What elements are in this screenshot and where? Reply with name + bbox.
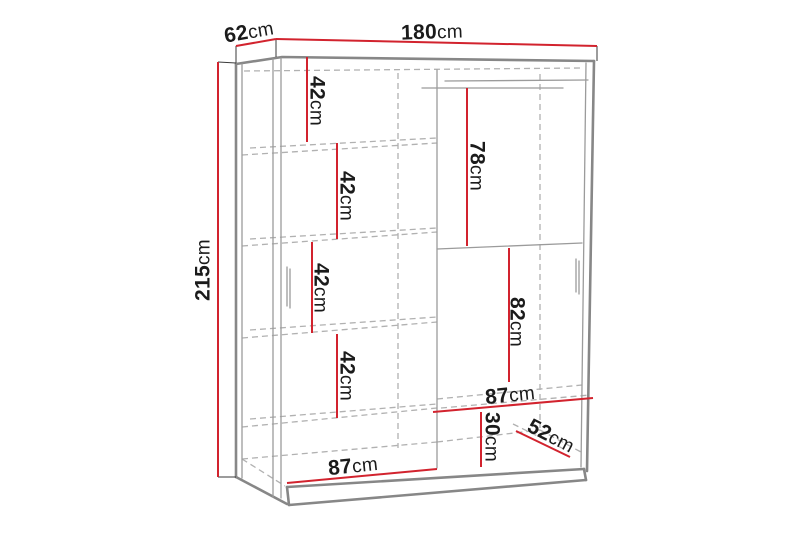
- dim-label-shelf-42-2: 42cm: [337, 171, 358, 221]
- shelf-line: [250, 317, 437, 330]
- dim-unit: cm: [466, 165, 487, 191]
- shelf-line: [250, 138, 437, 148]
- dim-label-hanging-78: 78cm: [467, 141, 488, 191]
- dim-unit: cm: [437, 21, 464, 43]
- right-side-inner-edge: [581, 63, 586, 467]
- dim-label-hanging-82: 82cm: [507, 297, 528, 347]
- dim-unit: cm: [351, 454, 379, 478]
- dim-unit: cm: [506, 321, 527, 347]
- right-door-handle: [576, 259, 579, 294]
- dim-unit: cm: [246, 18, 275, 43]
- dim-value: 215: [192, 265, 215, 301]
- dim-value: 78: [466, 141, 489, 165]
- dim-unit: cm: [306, 100, 327, 126]
- plinth-left-edge: [287, 487, 289, 505]
- wardrobe-line-drawing: [0, 0, 800, 533]
- left-side-bottom-edge: [236, 477, 287, 504]
- dim-value: 42: [306, 76, 329, 100]
- dim-value: 42: [336, 171, 359, 195]
- dim-label-height-30: 30cm: [482, 412, 503, 462]
- plinth-right-edge: [584, 469, 586, 480]
- dim-label-shelf-42-3: 42cm: [311, 263, 332, 313]
- dim-unit: cm: [336, 375, 357, 401]
- shelf-line: [242, 322, 437, 338]
- dim-label-shelf-42-1: 42cm: [307, 76, 328, 126]
- dim-value: 30: [481, 412, 504, 436]
- dim-unit: cm: [481, 436, 502, 462]
- dim-value: 180: [401, 20, 438, 44]
- top-front-edge: [236, 57, 594, 64]
- dim-value: 42: [336, 351, 359, 375]
- dim-label-shelf-42-4: 42cm: [337, 351, 358, 401]
- dim-label-height-215: 215cm: [193, 239, 214, 301]
- dim-unit: cm: [194, 239, 215, 265]
- dim-unit: cm: [508, 383, 536, 407]
- dim-value: 87: [484, 384, 510, 409]
- dim-label-width-87-right: 87cm: [484, 382, 536, 408]
- extension-line: [218, 62, 236, 63]
- dim-unit: cm: [336, 195, 357, 221]
- floor-depth-line-left: [242, 459, 285, 486]
- dim-value: 82: [506, 297, 529, 321]
- dim-unit: cm: [310, 287, 331, 313]
- dim-value: 42: [310, 263, 333, 287]
- wardrobe-dimension-diagram: 62cm 180cm 215cm 42cm 42cm 42cm 42cm 78c…: [0, 0, 800, 533]
- left-door-handle: [287, 267, 290, 308]
- interior-ceiling-line: [244, 68, 581, 71]
- shelf-line: [250, 228, 437, 239]
- right-side-outer-edge: [587, 61, 594, 471]
- shelf-line: [242, 143, 437, 155]
- dim-label-width-180: 180cm: [401, 20, 464, 43]
- dim-value: 87: [327, 455, 353, 480]
- hanging-rail-back: [445, 80, 588, 81]
- dim-label-width-87-left: 87cm: [327, 453, 379, 479]
- shelf-line: [242, 232, 437, 246]
